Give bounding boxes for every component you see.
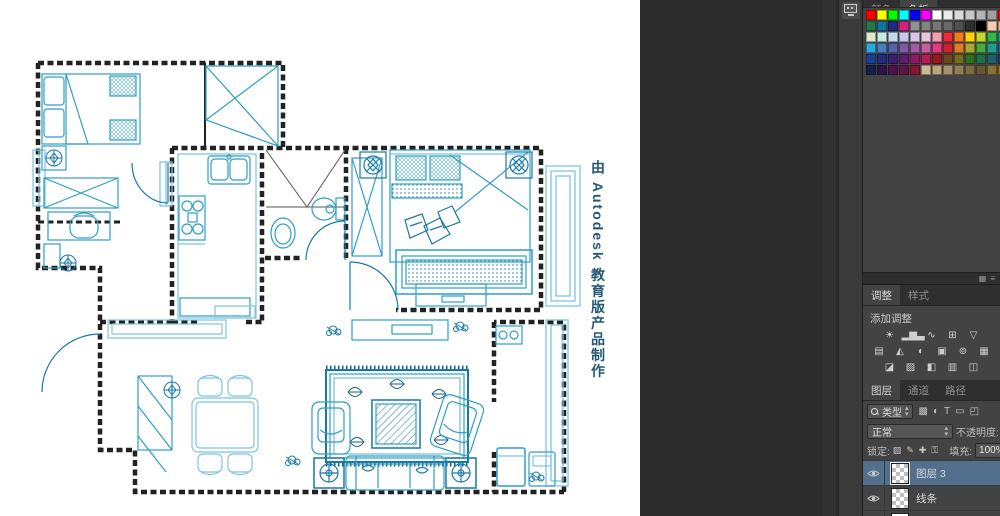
living-dining	[108, 320, 544, 490]
swatch[interactable]	[965, 10, 975, 20]
channel-mixer-icon[interactable]: ⊚	[954, 345, 972, 359]
swatch[interactable]	[877, 32, 887, 42]
swatch[interactable]	[866, 32, 876, 42]
layer-thumbnail[interactable]	[891, 513, 909, 516]
swatch[interactable]	[877, 21, 887, 31]
hue-saturation-icon[interactable]: ▤	[870, 345, 888, 359]
swatch[interactable]	[932, 21, 942, 31]
floor-plan-svg: 由 Autodesk 教育版产品制作	[0, 0, 640, 516]
filter-adjustment-icon[interactable]: ◐	[933, 405, 939, 419]
master-bedroom	[350, 150, 532, 310]
layer-visibility-toggle[interactable]	[863, 486, 885, 510]
swatch[interactable]	[877, 65, 887, 75]
swatch[interactable]	[987, 43, 997, 53]
blend-row: 正常 ▴▾ 不透明度: 100%	[863, 422, 1000, 441]
swatch[interactable]	[921, 43, 931, 53]
lock-row: 锁定: ▨✎✚⚿ 填充: 100%	[863, 441, 1000, 460]
photo-filter-icon[interactable]: ▣	[933, 345, 951, 359]
swatch[interactable]	[932, 10, 942, 20]
swatch[interactable]	[888, 43, 898, 53]
swatch[interactable]	[976, 65, 986, 75]
swatch[interactable]	[987, 54, 997, 64]
swatch[interactable]	[932, 65, 942, 75]
lock-pixels-icon[interactable]: ✎	[906, 445, 914, 456]
panel-grid-icon[interactable]: ▦	[979, 275, 987, 283]
levels-icon[interactable]: ▂▆▃	[902, 329, 920, 343]
layer-filter-icons: ▩◐T▭◰	[919, 405, 980, 419]
panel-dock: 颜色 色板 ▦ ≡ 调整 样式 添加调整 ☀▂▆▃∿⊞▽ ▤◭◐▣⊚▦ ◪▨◧▥…	[862, 0, 1000, 516]
swatch[interactable]	[921, 21, 931, 31]
swatch[interactable]	[877, 10, 887, 20]
blend-mode-dropdown[interactable]: 正常 ▴▾	[867, 424, 953, 439]
blend-mode-value: 正常	[872, 424, 892, 439]
swatch[interactable]	[910, 21, 920, 31]
swatch[interactable]	[943, 21, 953, 31]
swatch[interactable]	[932, 43, 942, 53]
curves-icon[interactable]: ∿	[923, 329, 941, 343]
tab-paths[interactable]: 路径	[937, 380, 974, 400]
swatch[interactable]	[954, 21, 964, 31]
lock-icons: ▨✎✚⚿	[893, 445, 938, 456]
swatch[interactable]	[976, 21, 986, 31]
layer-list: 图层 3 线条 图层 2	[863, 460, 1000, 516]
panel-group-header: ▦ ≡	[863, 272, 1000, 285]
swatch[interactable]	[932, 32, 942, 42]
swatch[interactable]	[888, 54, 898, 64]
dining-set	[192, 376, 258, 475]
add-adjustment-label: 添加调整	[863, 308, 1000, 328]
swatch[interactable]	[954, 43, 964, 53]
swatch[interactable]	[954, 54, 964, 64]
tab-layers[interactable]: 图层	[863, 380, 900, 400]
swatch[interactable]	[965, 43, 975, 53]
swatch[interactable]	[899, 54, 909, 64]
swatch[interactable]	[899, 32, 909, 42]
swatch[interactable]	[888, 10, 898, 20]
opacity-label: 不透明度:	[956, 424, 999, 439]
layer-visibility-toggle[interactable]	[863, 511, 885, 516]
swatch[interactable]	[954, 10, 964, 20]
swatch[interactable]	[921, 65, 931, 75]
swatch[interactable]	[921, 54, 931, 64]
swatch[interactable]	[976, 43, 986, 53]
document-vscrollbar[interactable]	[822, 0, 836, 516]
photoshop-workspace: 由 Autodesk 教育版产品制作 颜色 色板 ▦ ≡ 调整	[0, 0, 1000, 516]
layer-visibility-toggle[interactable]	[863, 461, 885, 485]
swatch[interactable]	[976, 32, 986, 42]
tab-swatches[interactable]: 色板	[900, 0, 937, 7]
swatch[interactable]	[965, 54, 975, 64]
posterize-icon[interactable]: ▨	[902, 361, 920, 375]
swatch[interactable]	[976, 10, 986, 20]
swatch[interactable]	[921, 32, 931, 42]
lock-label: 锁定:	[867, 443, 890, 458]
swatch[interactable]	[987, 32, 997, 42]
fill-value[interactable]: 100%	[975, 443, 1000, 458]
layer-thumbnail[interactable]	[891, 463, 909, 484]
swatch[interactable]	[888, 21, 898, 31]
layer-row[interactable]: 线条	[863, 486, 1000, 511]
swatches-tabbar: 颜色 色板	[863, 0, 1000, 8]
swatch[interactable]	[965, 21, 975, 31]
swatch[interactable]	[899, 21, 909, 31]
swatch[interactable]	[932, 54, 942, 64]
swatch[interactable]	[866, 43, 876, 53]
threshold-icon[interactable]: ◧	[923, 361, 941, 375]
swatch[interactable]	[943, 54, 953, 64]
panel-menu-icon[interactable]: ≡	[990, 275, 995, 283]
swatch[interactable]	[888, 32, 898, 42]
windows-balconies	[33, 150, 580, 486]
swatches-empty-area	[863, 76, 1000, 272]
swatch[interactable]	[943, 10, 953, 20]
fill-label: 填充:	[949, 443, 972, 458]
tab-color[interactable]: 颜色	[863, 0, 900, 7]
swatch[interactable]	[954, 65, 964, 75]
swatch[interactable]	[987, 10, 997, 20]
filter-pixel-icon[interactable]: ▩	[919, 405, 928, 419]
swatch[interactable]	[943, 65, 953, 75]
layer-row[interactable]: 图层 3	[863, 461, 1000, 486]
swatch[interactable]	[877, 54, 887, 64]
adjustment-icon-row: ◪▨◧▥◫	[863, 360, 1000, 376]
lock-all-icon[interactable]: ⚿	[931, 445, 938, 456]
swatch[interactable]	[866, 65, 876, 75]
document-canvas[interactable]: 由 Autodesk 教育版产品制作	[0, 0, 640, 516]
gradient-map-icon[interactable]: ▥	[944, 361, 962, 375]
swatch[interactable]	[899, 43, 909, 53]
search-icon	[871, 408, 879, 416]
chevron-updown-icon: ▴▾	[944, 426, 948, 438]
swatch[interactable]	[943, 32, 953, 42]
lock-position-icon[interactable]: ✚	[919, 445, 927, 456]
adjustments-tabbar: 调整 样式	[863, 285, 1000, 306]
swatch[interactable]	[866, 21, 876, 31]
swatch[interactable]	[954, 32, 964, 42]
swatch[interactable]	[965, 32, 975, 42]
layer-filter-kind-dropdown[interactable]: 类型 ▴▾	[867, 404, 913, 419]
swatch[interactable]	[866, 54, 876, 64]
layers-tabbar: 图层 通道 路径	[863, 380, 1000, 401]
filter-type-icon[interactable]: T	[944, 405, 950, 419]
panel-screen-icon	[844, 4, 857, 13]
kind-label: 类型	[882, 404, 902, 419]
invert-icon[interactable]: ◪	[881, 361, 899, 375]
swatch-grid	[863, 8, 1000, 76]
color-lookup-icon[interactable]: ▦	[975, 345, 993, 359]
swatch[interactable]	[987, 65, 997, 75]
filter-smart-object-icon[interactable]: ◰	[970, 405, 979, 419]
throw-pillows	[405, 206, 460, 244]
chevron-updown-icon: ▴▾	[905, 406, 909, 418]
swatch[interactable]	[910, 43, 920, 53]
adjustment-icon-row: ▤◭◐▣⊚▦	[863, 344, 1000, 360]
swatch[interactable]	[910, 65, 920, 75]
lock-transparency-icon[interactable]: ▨	[893, 445, 902, 456]
pasteboard: 由 Autodesk 教育版产品制作	[0, 0, 838, 516]
collapsed-panel-button[interactable]	[842, 2, 860, 19]
eye-icon	[867, 494, 880, 503]
tab-adjustments[interactable]: 调整	[863, 285, 900, 305]
adjustment-icon-row: ☀▂▆▃∿⊞▽	[863, 328, 1000, 344]
swatch[interactable]	[987, 21, 997, 31]
swatch[interactable]	[899, 65, 909, 75]
kitchen	[178, 154, 256, 318]
swatch[interactable]	[921, 10, 931, 20]
black-white-icon[interactable]: ◐	[912, 345, 930, 359]
swatch[interactable]	[888, 65, 898, 75]
swatch[interactable]	[910, 54, 920, 64]
autodesk-watermark: 由 Autodesk 教育版产品制作	[590, 159, 606, 379]
filter-shape-icon[interactable]: ▭	[955, 405, 964, 419]
selective-color-icon[interactable]: ◫	[965, 361, 983, 375]
swatch[interactable]	[910, 10, 920, 20]
swatch[interactable]	[899, 10, 909, 20]
layer-name: 图层 3	[916, 466, 946, 481]
bathroom	[266, 150, 345, 260]
adjustments-panel: 添加调整 ☀▂▆▃∿⊞▽ ▤◭◐▣⊚▦ ◪▨◧▥◫	[863, 306, 1000, 380]
layers-filter-row: 类型 ▴▾ ▩◐T▭◰	[863, 401, 1000, 422]
swatch[interactable]	[910, 32, 920, 42]
swatch[interactable]	[976, 54, 986, 64]
brightness-contrast-icon[interactable]: ☀	[881, 329, 899, 343]
eye-icon	[867, 469, 880, 478]
tab-channels[interactable]: 通道	[900, 380, 937, 400]
layer-name: 线条	[916, 491, 937, 506]
swatch[interactable]	[866, 10, 876, 20]
layer-row[interactable]: 图层 2	[863, 511, 1000, 516]
swatch[interactable]	[965, 65, 975, 75]
swatch[interactable]	[943, 43, 953, 53]
exposure-icon[interactable]: ⊞	[944, 329, 962, 343]
color-balance-icon[interactable]: ◭	[891, 345, 909, 359]
vibrance-icon[interactable]: ▽	[965, 329, 983, 343]
tab-styles[interactable]: 样式	[900, 285, 937, 305]
swatch[interactable]	[877, 43, 887, 53]
layer-thumbnail[interactable]	[891, 488, 909, 509]
collapsed-panel-dock	[838, 0, 862, 516]
